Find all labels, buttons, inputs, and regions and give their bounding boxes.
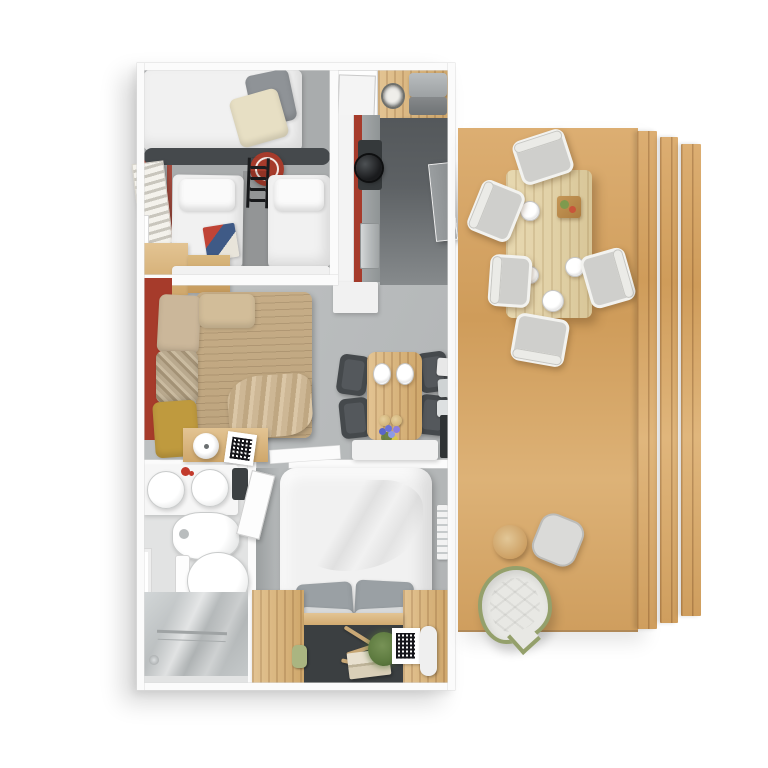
wall-kids-kitchen (330, 63, 338, 285)
beige-cushion (157, 294, 202, 354)
outer-wall-top (137, 63, 455, 70)
floor-plan-scene (0, 0, 768, 768)
wood-platform-left (252, 590, 304, 683)
fence-panel (660, 137, 678, 623)
lamp (193, 433, 219, 459)
plate (373, 363, 391, 385)
flower-bouquet (385, 425, 392, 432)
bidet-faucet (179, 529, 189, 539)
white-bench (352, 440, 438, 460)
fence-panel (637, 131, 657, 629)
patterned-cushion (156, 351, 198, 403)
serving-tray (557, 196, 581, 218)
dining-chair (335, 353, 370, 397)
fence-panel (681, 144, 701, 616)
coffee-machine-top (409, 73, 447, 97)
teardrop-lounge-cushion (478, 566, 552, 644)
green-cup (292, 645, 307, 668)
sink-basin (147, 471, 185, 509)
cooking-pot (356, 155, 382, 181)
sink-basin (191, 469, 229, 507)
twin-bed-left-pillow (179, 179, 235, 211)
outdoor-chair (487, 254, 533, 309)
outer-wall-bottom (137, 683, 455, 690)
bread-roll (391, 415, 402, 426)
wood-stool (493, 525, 527, 559)
outer-wall-right (448, 63, 455, 690)
kitchen-cabinet-front (338, 115, 354, 282)
plate (396, 363, 414, 385)
gray-pouf (528, 509, 589, 571)
sofa-top-cushion (199, 294, 255, 328)
shower-head (149, 655, 159, 665)
twin-bed-right-pillow (274, 179, 324, 211)
white-roll-cushion (420, 626, 437, 676)
utensil-pot (383, 85, 403, 107)
wall-living-master (289, 460, 455, 468)
soap-dispenser (181, 467, 190, 476)
plate (542, 290, 564, 312)
kitchen-sink (360, 223, 380, 269)
coffee-machine-body (409, 97, 447, 115)
floor-shadow-between-beds (243, 171, 268, 268)
towel-radiator (437, 505, 448, 560)
sideboard (333, 282, 378, 313)
lodge-unit (137, 63, 455, 690)
bunk-guard-rail (144, 148, 330, 165)
outer-wall-left (137, 63, 144, 690)
qr-frame (392, 628, 420, 664)
outdoor-chair (509, 312, 571, 369)
qr-book (224, 431, 257, 466)
wooden-deck (458, 128, 638, 632)
